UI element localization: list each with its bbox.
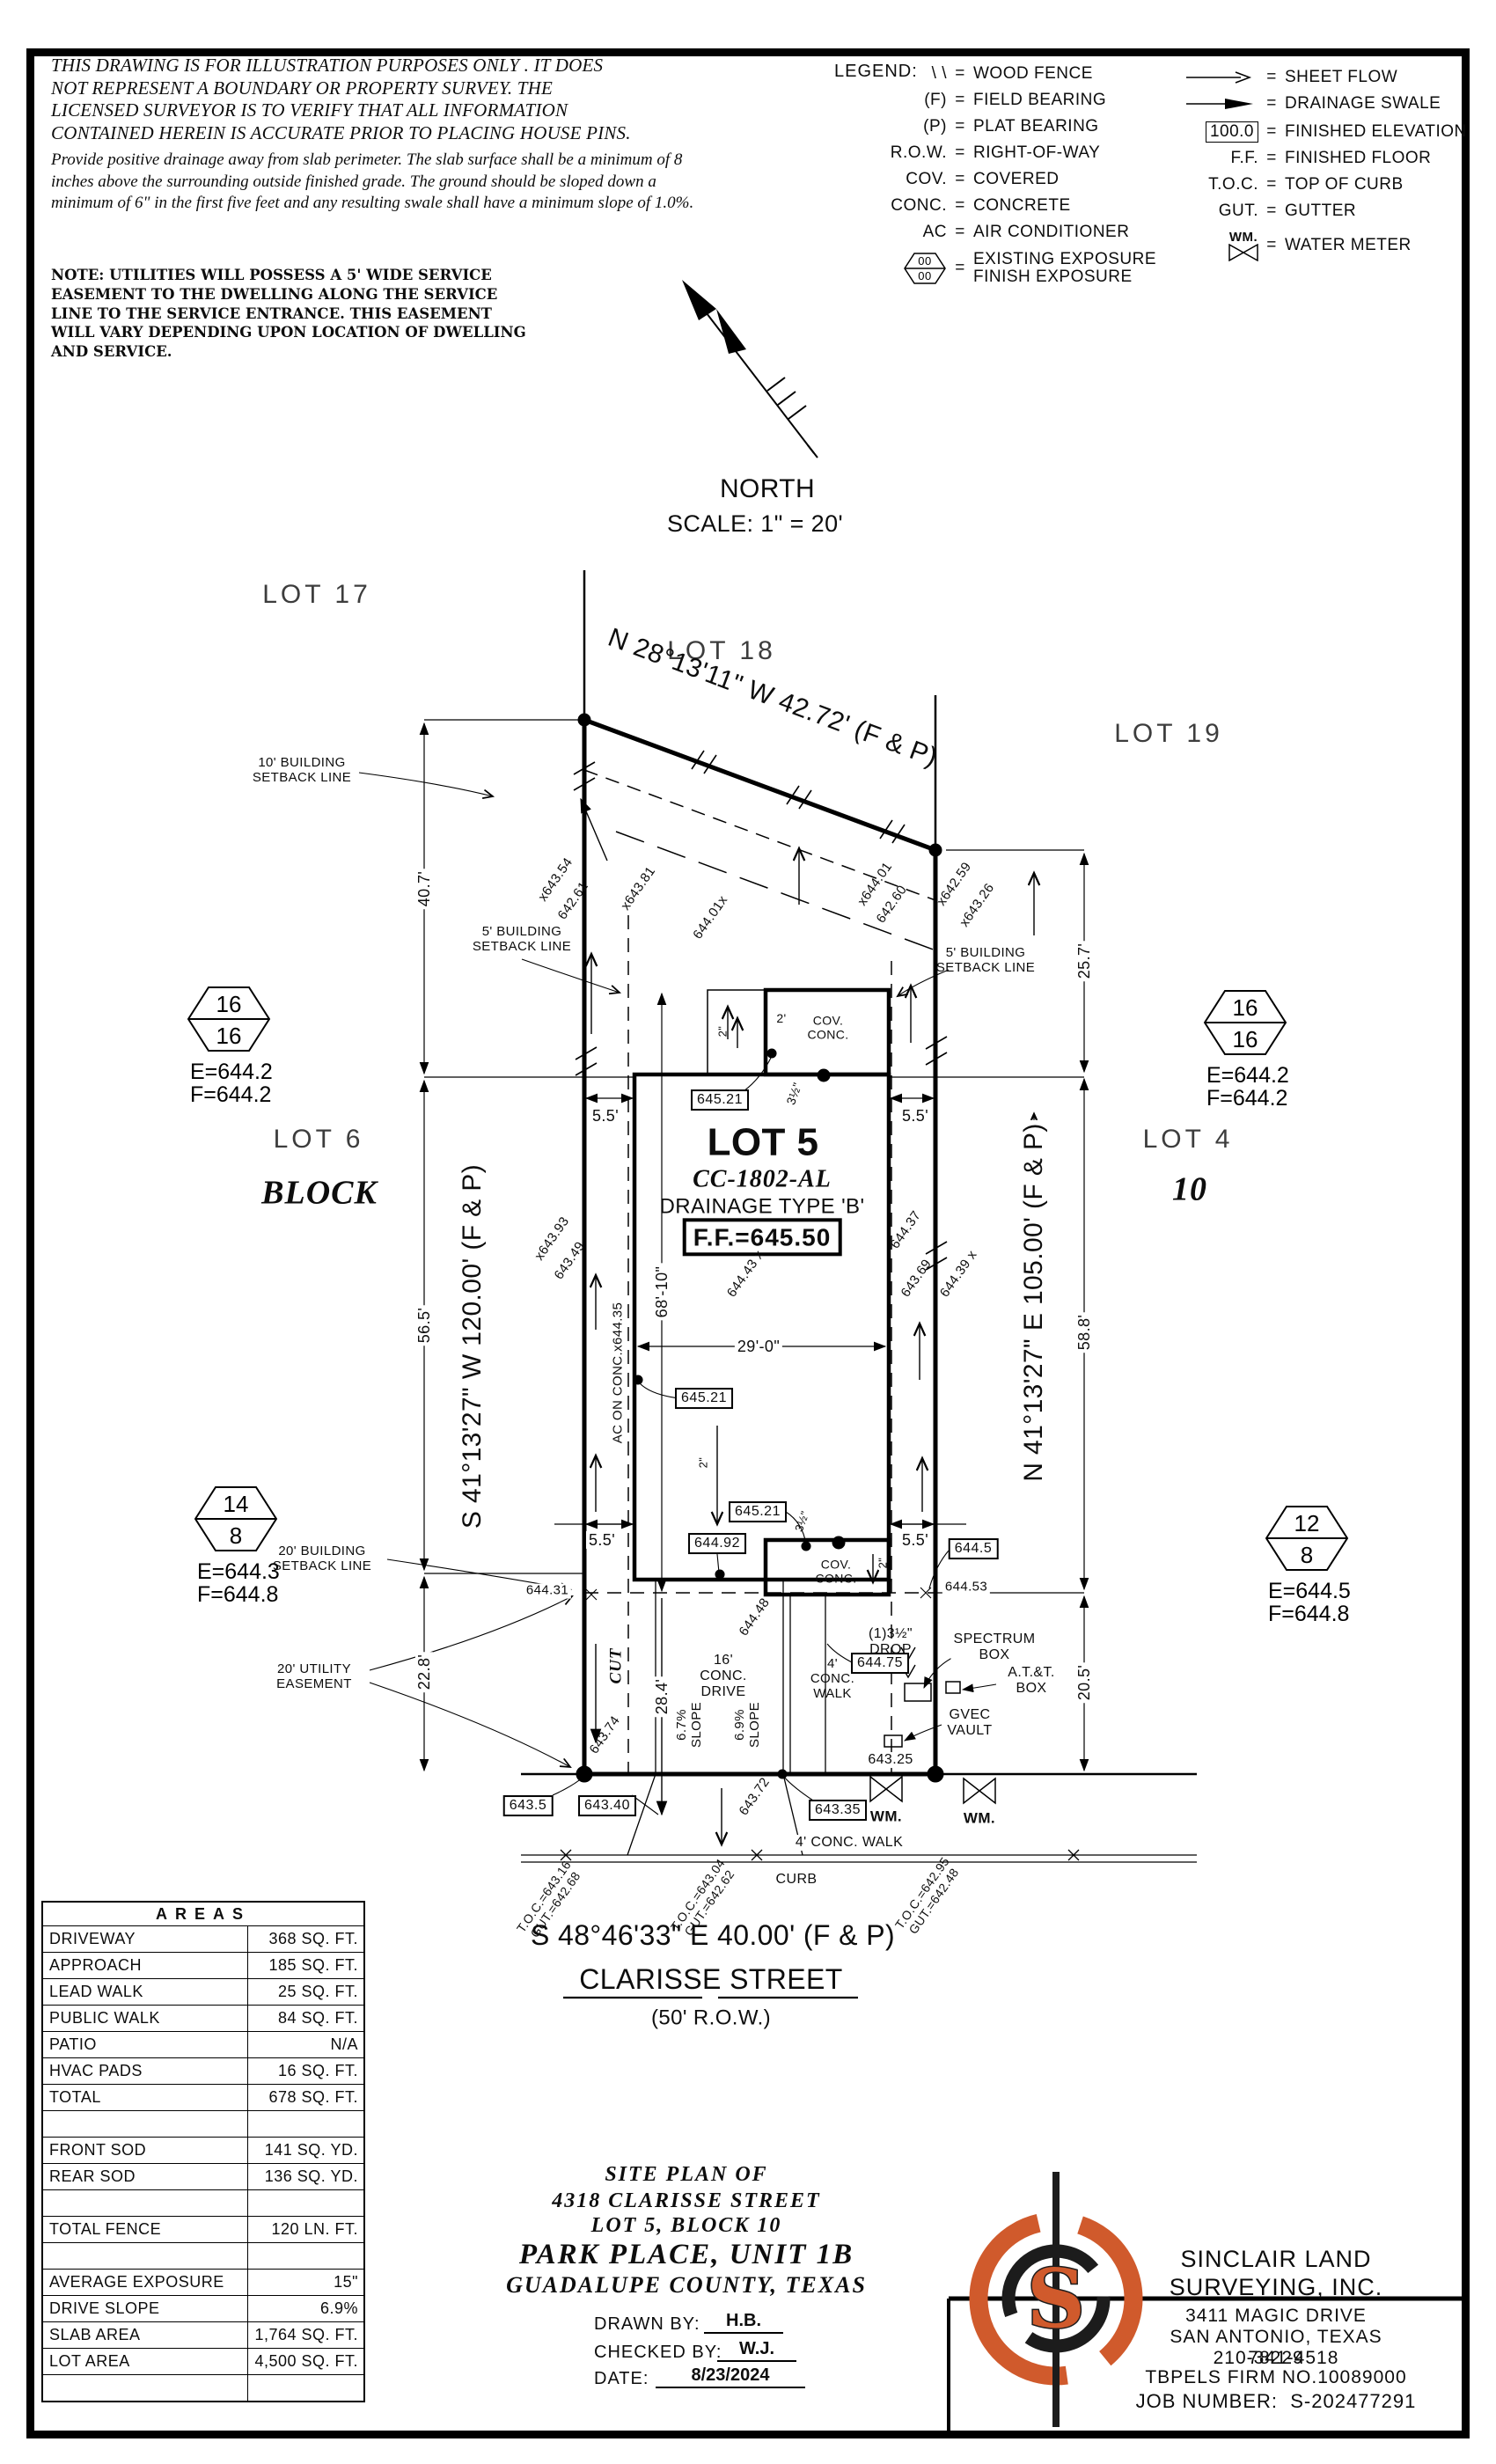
- areas-row-label: REAR SOD: [43, 2164, 247, 2189]
- plan-annotation: 4' CONC. WALK: [810, 1657, 854, 1701]
- areas-row-label: SLAB AREA: [43, 2322, 247, 2348]
- boxed-elevation: 643.40: [578, 1795, 636, 1816]
- areas-table-row: [43, 2110, 363, 2137]
- svg-text:00: 00: [918, 269, 931, 282]
- drainage-swale-icon: [1184, 97, 1258, 111]
- exposure-flag: 148E=644.3F=644.8: [190, 1480, 282, 1625]
- plan-annotation: SPECTRUM BOX: [951, 1632, 1038, 1663]
- areas-row-label: LEAD WALK: [43, 1979, 247, 2005]
- job-number-value: S-202477291: [1290, 2390, 1416, 2412]
- checked-by-value: W.J.: [717, 2339, 796, 2362]
- svg-text:14: 14: [224, 1491, 249, 1517]
- boxed-elevation: 644.75: [851, 1653, 909, 1674]
- title-block-line: SITE PLAN OF: [458, 2163, 915, 2187]
- areas-row-value: 185 SQ. FT.: [247, 1953, 363, 1978]
- areas-row-value: 4,500 SQ. FT.: [247, 2349, 363, 2374]
- title-block-line: 4318 CLARISSE STREET: [458, 2189, 915, 2213]
- plan-annotation: 20.5': [1075, 1662, 1093, 1703]
- drawn-by-value: H.B.: [704, 2311, 783, 2334]
- disclaimer-body: Provide positive drainage away from slab…: [51, 150, 700, 215]
- plan-annotation: 16' CONC. DRIVE: [700, 1653, 747, 1700]
- areas-row-value: 6.9%: [247, 2296, 363, 2321]
- job-number-label: JOB NUMBER:: [1136, 2390, 1278, 2412]
- plan-annotation: 28.4': [653, 1676, 671, 1717]
- bearing-right: N 41°13'27" E 105.00' (F & P): [1019, 1120, 1049, 1485]
- legend-row: T.O.C.=TOP OF CURB: [1160, 171, 1404, 199]
- bearing-left: S 41°13'27" W 120.00' (F & P): [458, 1162, 488, 1531]
- areas-row-value: 16 SQ. FT.: [247, 2058, 363, 2084]
- areas-row-label: APPROACH: [43, 1953, 247, 1978]
- plan-annotation: 2': [776, 1012, 786, 1026]
- legend-row: (F)=FIELD BEARING: [843, 86, 1106, 114]
- exposure-flag: 128E=644.5F=644.8: [1261, 1500, 1353, 1645]
- areas-row-value: 120 LN. FT.: [247, 2217, 363, 2242]
- firm-name-line2: SURVEYING, INC.: [1162, 2274, 1390, 2301]
- plan-annotation: AC ON CONC.x644.35: [612, 1300, 627, 1447]
- plan-annotation: 29'-0": [735, 1338, 782, 1355]
- street-name: CLARISSE STREET: [579, 1964, 842, 1996]
- svg-text:16: 16: [1233, 1026, 1258, 1052]
- areas-table-row: SLAB AREA1,764 SQ. FT.: [43, 2321, 363, 2348]
- areas-table-row: [43, 2189, 363, 2216]
- street-row: (50' R.O.W.): [651, 2007, 771, 2031]
- utility-easement-note: NOTE: UTILITIES WILL POSSESS A 5' WIDE S…: [51, 266, 531, 362]
- plan-annotation: COV. CONC.: [815, 1558, 856, 1585]
- plan-annotation: WM.: [964, 1809, 995, 1826]
- plan-annotation: 2": [698, 1457, 711, 1469]
- drainage-type: DRAINAGE TYPE 'B': [660, 1196, 865, 1220]
- svg-text:E=644.5: E=644.5: [1268, 1579, 1351, 1603]
- areas-row-label: PUBLIC WALK: [43, 2006, 247, 2031]
- areas-table-row: [43, 2374, 363, 2401]
- title-block-line: LOT 5, BLOCK 10: [458, 2214, 915, 2238]
- plan-annotation: 644.53: [942, 1580, 990, 1595]
- plan-annotation: 644.31: [524, 1584, 571, 1599]
- title-block-line: PARK PLACE, UNIT 1B: [458, 2239, 915, 2271]
- legend-row: R.O.W.=RIGHT-OF-WAY: [843, 139, 1100, 167]
- areas-row-value: 15": [247, 2270, 363, 2295]
- title-block-line: GUADALUPE COUNTY, TEXAS: [458, 2272, 915, 2299]
- plan-annotation: 6.9% SLOPE: [733, 1702, 763, 1748]
- site-plan-document: S THIS DRAWING IS FOR ILLUSTRATION PURPO…: [0, 0, 1496, 2464]
- plan-annotation: 643.25: [865, 1752, 915, 1768]
- legend-row: 100.0=FINISHED ELEVATION: [1160, 118, 1467, 146]
- areas-row-value: 678 SQ. FT.: [247, 2085, 363, 2110]
- plan-annotation: CURB: [774, 1872, 820, 1888]
- areas-row-label: [43, 2111, 247, 2137]
- firm-address1: 3411 MAGIC DRIVE: [1153, 2306, 1399, 2327]
- areas-table-row: FRONT SOD141 SQ. YD.: [43, 2137, 363, 2163]
- areas-table-row: AVERAGE EXPOSURE15": [43, 2269, 363, 2295]
- areas-row-label: TOTAL FENCE: [43, 2217, 247, 2242]
- north-label: NORTH: [720, 474, 815, 504]
- svg-text:8: 8: [1301, 1542, 1313, 1568]
- areas-table-row: TOTAL678 SQ. FT.: [43, 2084, 363, 2110]
- legend-row: F.F.=FINISHED FLOOR: [1160, 144, 1431, 172]
- svg-text:F=644.2: F=644.2: [1206, 1086, 1287, 1111]
- areas-row-value: N/A: [247, 2032, 363, 2057]
- areas-table-row: HVAC PADS16 SQ. FT.: [43, 2057, 363, 2084]
- lot-19-label: LOT 19: [1114, 719, 1223, 749]
- areas-row-label: AVERAGE EXPOSURE: [43, 2270, 247, 2295]
- areas-row-label: [43, 2243, 247, 2269]
- block-label: BLOCK: [261, 1175, 378, 1213]
- plan-annotation: 2": [877, 1558, 891, 1569]
- boxed-elevation: 645.21: [691, 1089, 749, 1111]
- svg-text:16: 16: [1233, 994, 1258, 1021]
- areas-table-row: APPROACH185 SQ. FT.: [43, 1952, 363, 1978]
- areas-row-value: [247, 2190, 363, 2216]
- plan-code: CC-1802-AL: [693, 1165, 832, 1192]
- plan-annotation: 40.7': [415, 869, 433, 909]
- legend-row: =SHEET FLOW: [1160, 63, 1397, 92]
- plan-annotation: CUT: [606, 1648, 625, 1684]
- plan-annotation: 22.8': [415, 1652, 433, 1692]
- legend-row: AC=AIR CONDITIONER: [843, 218, 1129, 246]
- areas-table-row: REAR SOD136 SQ. YD.: [43, 2163, 363, 2189]
- areas-row-value: 1,764 SQ. FT.: [247, 2322, 363, 2348]
- svg-text:16: 16: [216, 991, 242, 1017]
- areas-row-value: 141 SQ. YD.: [247, 2138, 363, 2163]
- areas-table-row: LOT AREA4,500 SQ. FT.: [43, 2348, 363, 2374]
- drawn-by-label: DRAWN BY:: [594, 2314, 700, 2335]
- areas-row-value: [247, 2375, 363, 2401]
- areas-table-row: PATION/A: [43, 2031, 363, 2057]
- legend-row: \ \=WOOD FENCE: [843, 60, 1093, 88]
- bearing-front: S 48°46'33" E 40.00' (F & P): [531, 1920, 895, 1952]
- firm-name-line1: SINCLAIR LAND: [1162, 2246, 1390, 2273]
- areas-table-row: TOTAL FENCE120 LN. FT.: [43, 2216, 363, 2242]
- water-meter-icon: WM.: [1228, 231, 1258, 261]
- svg-text:S: S: [1027, 2251, 1085, 2346]
- block-number: 10: [1172, 1171, 1207, 1209]
- plan-annotation: 5.5': [586, 1531, 618, 1549]
- areas-row-label: TOTAL: [43, 2085, 247, 2110]
- disclaimer-caps: THIS DRAWING IS FOR ILLUSTRATION PURPOSE…: [51, 55, 639, 144]
- plan-annotation: A.T.&T. BOX: [1005, 1665, 1057, 1697]
- plan-annotation: 10' BUILDING SETBACK LINE: [253, 756, 351, 786]
- plan-annotation: 25.7': [1075, 941, 1093, 981]
- sheet-flow-icon: [1184, 70, 1258, 84]
- boxed-elevation: 644.5: [949, 1538, 999, 1559]
- svg-text:F=644.8: F=644.8: [197, 1582, 278, 1607]
- plan-annotation: 5.5': [899, 1107, 931, 1125]
- svg-text:E=644.3: E=644.3: [197, 1559, 280, 1584]
- plan-annotation: 56.5': [415, 1305, 433, 1346]
- lot-5-label: LOT 5: [708, 1120, 819, 1163]
- scale-label: SCALE: 1" = 20': [667, 510, 843, 537]
- areas-row-value: [247, 2111, 363, 2137]
- legend-row: GUT.=GUTTER: [1160, 197, 1356, 225]
- areas-row-label: DRIVE SLOPE: [43, 2296, 247, 2321]
- north-arrow-icon: [682, 280, 818, 458]
- exposure-flag: 1616E=644.2F=644.2: [1199, 984, 1291, 1129]
- areas-table-row: DRIVE SLOPE6.9%: [43, 2295, 363, 2321]
- legend-row: COV.=COVERED: [843, 165, 1059, 194]
- lot-17-label: LOT 17: [262, 580, 371, 610]
- checked-by-label: CHECKED BY:: [594, 2343, 722, 2363]
- areas-table: AREAS DRIVEWAY368 SQ. FT.APPROACH185 SQ.…: [41, 1901, 365, 2402]
- legend-row: (P)=PLAT BEARING: [843, 113, 1099, 141]
- firm-registration: TBPELS FIRM NO.10089000: [1140, 2367, 1412, 2388]
- areas-row-value: 25 SQ. FT.: [247, 1979, 363, 2005]
- areas-row-value: [247, 2243, 363, 2269]
- areas-row-label: HVAC PADS: [43, 2058, 247, 2084]
- plan-annotation: 5' BUILDING SETBACK LINE: [473, 925, 571, 955]
- job-number-line: JOB NUMBER: S-202477291: [1131, 2390, 1421, 2413]
- exposure-flag: 1616E=644.2F=644.2: [183, 980, 275, 1126]
- boxed-elevation: 643.35: [809, 1800, 867, 1821]
- boxed-elevation: 643.5: [503, 1795, 554, 1816]
- plan-annotation: 5.5': [590, 1107, 621, 1125]
- areas-row-value: 368 SQ. FT.: [247, 1926, 363, 1952]
- areas-row-label: DRIVEWAY: [43, 1926, 247, 1952]
- finished-elevation-icon: 100.0: [1206, 121, 1258, 143]
- areas-table-title: AREAS: [43, 1903, 363, 1925]
- finished-floor-value: F.F.=645.50: [683, 1218, 842, 1256]
- areas-row-value: 136 SQ. YD.: [247, 2164, 363, 2189]
- areas-row-label: FRONT SOD: [43, 2138, 247, 2163]
- legend-row: CONC.=CONCRETE: [843, 192, 1071, 220]
- boxed-elevation: 644.92: [688, 1533, 746, 1554]
- plan-annotation: GVEC VAULT: [944, 1707, 994, 1739]
- plan-annotation: COV. CONC.: [807, 1014, 848, 1041]
- areas-row-label: [43, 2190, 247, 2216]
- legend-row: WM.=WATER METER: [1160, 231, 1412, 260]
- svg-text:E=644.2: E=644.2: [190, 1060, 273, 1084]
- plan-annotation: 4' CONC. WALK: [793, 1835, 906, 1851]
- svg-text:12: 12: [1294, 1510, 1320, 1536]
- svg-text:8: 8: [230, 1522, 242, 1549]
- areas-table-row: [43, 2242, 363, 2269]
- plan-annotation: 58.8': [1075, 1312, 1093, 1353]
- areas-row-label: PATIO: [43, 2032, 247, 2057]
- plan-annotation: 20' UTILITY EASEMENT: [276, 1662, 352, 1692]
- areas-table-row: PUBLIC WALK84 SQ. FT.: [43, 2005, 363, 2031]
- svg-text:16: 16: [216, 1023, 242, 1049]
- plan-annotation: 2": [717, 1026, 730, 1038]
- areas-table-row: LEAD WALK25 SQ. FT.: [43, 1978, 363, 2005]
- legend-row: 0000=EXISTING EXPOSUREFINISH EXPOSURE: [843, 254, 1156, 282]
- exposure-hexagon-icon: 0000: [903, 251, 947, 286]
- firm-phone: 210-341-4518: [1162, 2348, 1390, 2369]
- plan-annotation: WM.: [870, 1808, 902, 1824]
- areas-row-label: LOT AREA: [43, 2349, 247, 2374]
- boxed-elevation: 645.21: [729, 1501, 787, 1522]
- lot-4-label: LOT 4: [1143, 1125, 1234, 1155]
- svg-text:00: 00: [918, 254, 931, 268]
- plan-annotation: 5.5': [899, 1531, 931, 1549]
- svg-text:F=644.2: F=644.2: [190, 1082, 271, 1107]
- lot-6-label: LOT 6: [274, 1125, 364, 1155]
- plan-annotation: 20' BUILDING SETBACK LINE: [273, 1544, 371, 1574]
- svg-text:E=644.2: E=644.2: [1206, 1063, 1289, 1088]
- boxed-elevation: 645.21: [675, 1388, 733, 1409]
- plan-annotation: 5' BUILDING SETBACK LINE: [936, 946, 1035, 976]
- areas-row-value: 84 SQ. FT.: [247, 2006, 363, 2031]
- svg-text:F=644.8: F=644.8: [1268, 1602, 1349, 1626]
- plan-annotation: 68'-10": [653, 1264, 671, 1321]
- legend-row: =DRAINAGE SWALE: [1160, 90, 1441, 118]
- date-value: 8/23/2024: [656, 2365, 805, 2388]
- plan-annotation: 6.7% SLOPE: [675, 1702, 705, 1748]
- date-label: DATE:: [594, 2369, 649, 2389]
- areas-table-row: DRIVEWAY368 SQ. FT.: [43, 1925, 363, 1952]
- areas-row-label: [43, 2375, 247, 2401]
